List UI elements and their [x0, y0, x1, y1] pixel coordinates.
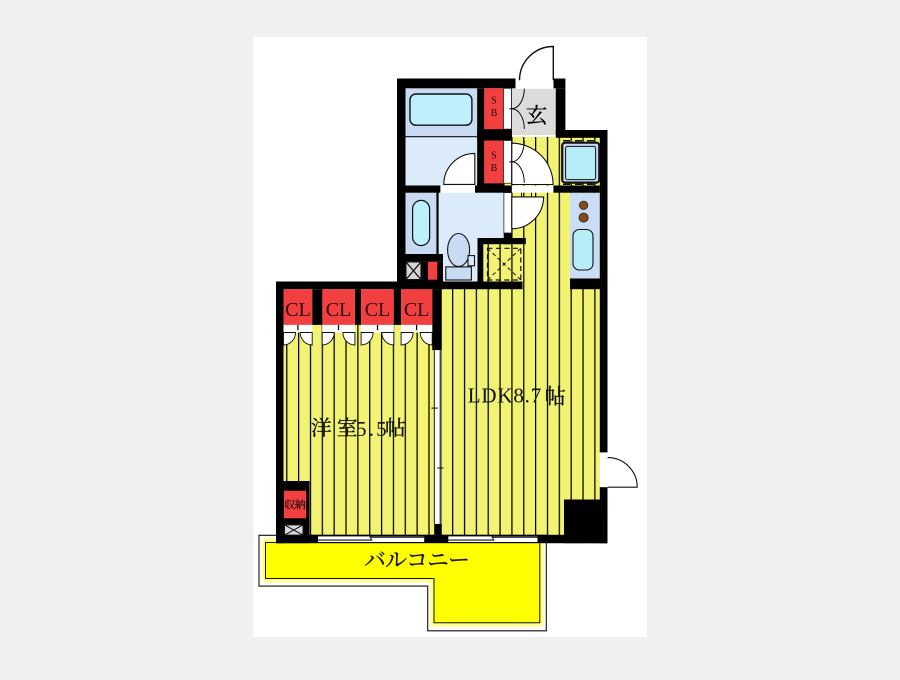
svg-text:CL: CL [404, 299, 430, 321]
svg-text:S: S [491, 96, 497, 107]
svg-text:B: B [491, 108, 498, 119]
svg-text:CL: CL [326, 299, 352, 321]
svg-text:B: B [491, 163, 498, 174]
svg-text:5.5: 5.5 [356, 417, 389, 441]
svg-text:CL: CL [285, 299, 311, 321]
svg-text:LDK8.7: LDK8.7 [468, 383, 542, 407]
svg-text:CL: CL [365, 299, 391, 321]
svg-text:S: S [491, 151, 497, 162]
